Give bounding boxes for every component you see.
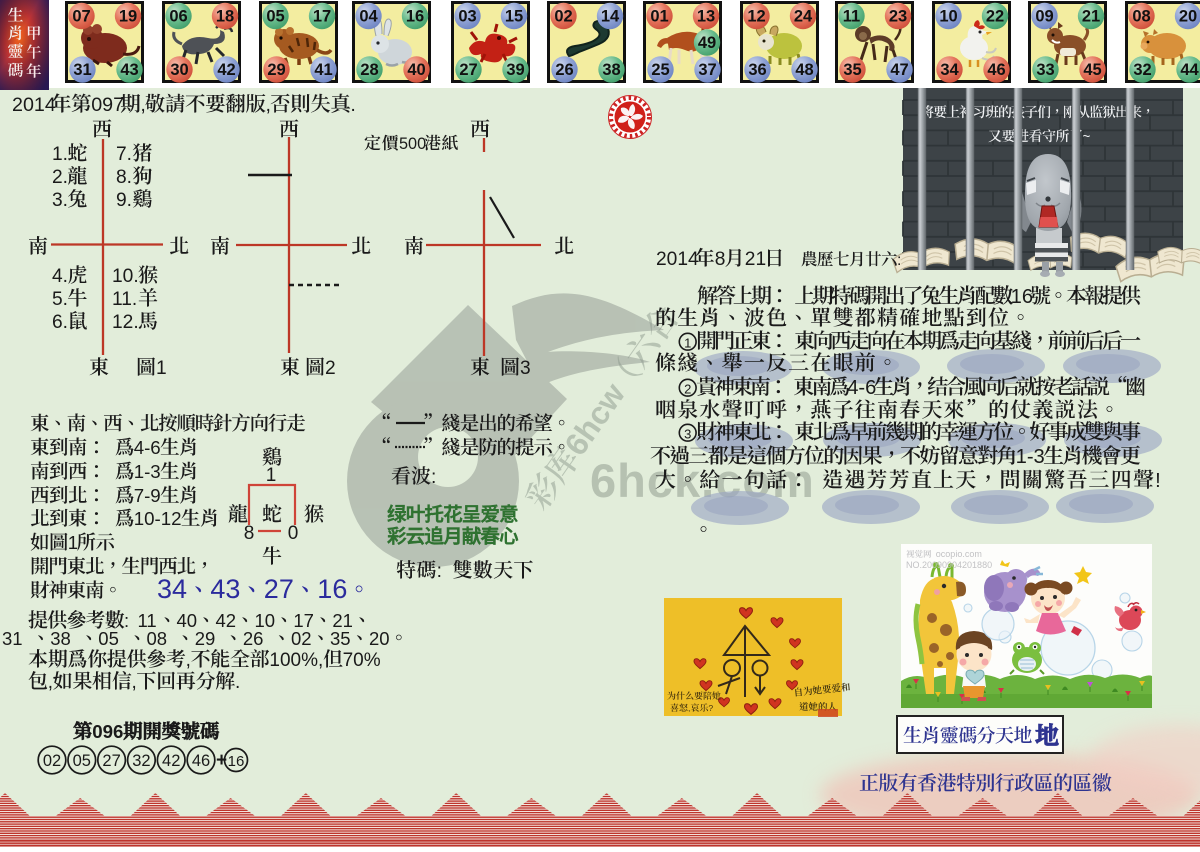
svg-text:12: 12 — [747, 8, 765, 26]
svg-text:35: 35 — [330, 628, 351, 649]
svg-text:097: 097 — [91, 94, 124, 116]
svg-text:36: 36 — [748, 61, 766, 79]
svg-text:43: 43 — [120, 61, 138, 79]
svg-text:47: 47 — [890, 61, 908, 79]
svg-text:44: 44 — [1180, 61, 1199, 79]
svg-text:2014: 2014 — [12, 94, 56, 116]
svg-text:32: 32 — [1133, 61, 1151, 79]
svg-text:5.: 5. — [52, 289, 68, 310]
svg-text:,: , — [132, 672, 137, 693]
svg-text:15: 15 — [505, 8, 523, 26]
svg-text:34: 34 — [157, 574, 187, 604]
svg-text:29: 29 — [195, 628, 216, 649]
svg-text:01: 01 — [650, 8, 668, 26]
svg-text:12.: 12. — [112, 312, 139, 333]
svg-text:30: 30 — [170, 61, 188, 79]
svg-text:03: 03 — [458, 8, 476, 26]
svg-text:42: 42 — [216, 610, 237, 631]
svg-text:41: 41 — [314, 61, 332, 79]
svg-text:13: 13 — [697, 8, 715, 26]
svg-text:20: 20 — [369, 628, 390, 649]
svg-text:38: 38 — [602, 61, 620, 79]
svg-text:17: 17 — [313, 8, 331, 26]
svg-text:8: 8 — [715, 249, 726, 270]
svg-text:05: 05 — [266, 8, 284, 26]
svg-text:1-3: 1-3 — [134, 461, 161, 482]
svg-text:31: 31 — [2, 628, 23, 649]
svg-text::: : — [897, 252, 901, 269]
svg-text:2014: 2014 — [656, 249, 699, 270]
svg-text:10-12: 10-12 — [134, 508, 182, 529]
svg-text:4-6: 4-6 — [134, 437, 161, 458]
svg-text::: : — [431, 467, 436, 488]
svg-text:02: 02 — [554, 8, 572, 26]
svg-text:4.: 4. — [52, 266, 68, 287]
svg-text:0: 0 — [288, 523, 299, 544]
svg-text:?: ? — [708, 703, 713, 713]
svg-text:4-6: 4-6 — [847, 377, 876, 399]
svg-text:32: 32 — [132, 752, 150, 770]
svg-text:16: 16 — [406, 8, 424, 26]
svg-text:6.: 6. — [52, 312, 68, 333]
svg-text:,: , — [48, 672, 53, 693]
svg-text:2: 2 — [684, 381, 691, 396]
svg-text:02: 02 — [291, 628, 312, 649]
svg-text:08: 08 — [1132, 8, 1150, 26]
svg-text:,: , — [688, 703, 690, 713]
svg-text:2.: 2. — [52, 167, 68, 188]
svg-text:21: 21 — [745, 249, 766, 270]
svg-text:26: 26 — [555, 61, 573, 79]
svg-text:42: 42 — [217, 61, 235, 79]
svg-text:27: 27 — [102, 752, 120, 770]
svg-text:07: 07 — [72, 8, 90, 26]
svg-text:1: 1 — [684, 335, 691, 350]
svg-text:,: , — [266, 94, 271, 116]
svg-text:06: 06 — [169, 8, 187, 26]
svg-text:16: 16 — [228, 753, 245, 770]
svg-text:3: 3 — [520, 358, 531, 379]
svg-text:02: 02 — [43, 752, 61, 770]
svg-text:48: 48 — [795, 61, 813, 79]
svg-text:43: 43 — [210, 574, 240, 604]
svg-text:~: ~ — [1083, 129, 1091, 144]
svg-text:.: . — [235, 672, 240, 693]
svg-text:42: 42 — [162, 752, 180, 770]
svg-text:+: + — [216, 750, 227, 771]
svg-text:08: 08 — [147, 628, 168, 649]
svg-text:46: 46 — [192, 752, 210, 770]
svg-text:05: 05 — [73, 752, 91, 770]
svg-text:37: 37 — [698, 61, 716, 79]
svg-text:14: 14 — [601, 8, 620, 26]
svg-text:1: 1 — [266, 465, 277, 486]
svg-text:.: . — [350, 94, 355, 116]
svg-text::: : — [437, 561, 442, 582]
svg-text:2: 2 — [325, 358, 336, 379]
svg-text:25: 25 — [651, 61, 669, 79]
svg-text:1.: 1. — [52, 144, 68, 165]
svg-text::: : — [124, 610, 129, 631]
svg-text:22: 22 — [986, 8, 1004, 26]
svg-text:10.: 10. — [112, 266, 139, 287]
svg-text:23: 23 — [889, 8, 907, 26]
svg-text:ocopio.com: ocopio.com — [936, 549, 982, 559]
svg-text:49: 49 — [698, 34, 716, 52]
svg-text:500: 500 — [399, 135, 426, 153]
svg-text:27: 27 — [459, 61, 477, 79]
svg-text:NO.20090904201880: NO.20090904201880 — [906, 560, 992, 570]
svg-text:05: 05 — [98, 628, 119, 649]
svg-text:19: 19 — [119, 8, 137, 26]
svg-text:04: 04 — [359, 8, 378, 26]
svg-text:33: 33 — [1036, 61, 1054, 79]
svg-text:10: 10 — [939, 8, 957, 26]
svg-text:,: , — [186, 650, 191, 671]
svg-text:3.: 3. — [52, 190, 68, 211]
svg-text:31: 31 — [73, 61, 91, 79]
svg-text:1: 1 — [156, 358, 167, 379]
svg-text:7.: 7. — [116, 144, 132, 165]
svg-text:11: 11 — [843, 8, 860, 26]
svg-text:45: 45 — [1083, 61, 1101, 79]
svg-text:3: 3 — [684, 426, 691, 441]
svg-text:46: 46 — [987, 61, 1005, 79]
svg-text:34: 34 — [940, 61, 959, 79]
svg-text:40: 40 — [407, 61, 425, 79]
svg-text:20: 20 — [1179, 8, 1197, 26]
svg-text:9.: 9. — [116, 190, 132, 211]
svg-text:09: 09 — [1035, 8, 1053, 26]
svg-text:1-3: 1-3 — [1016, 446, 1045, 468]
svg-text:8.: 8. — [116, 167, 132, 188]
svg-text:21: 21 — [1082, 8, 1100, 26]
svg-text:16: 16 — [1011, 286, 1033, 308]
svg-text:11.: 11. — [112, 289, 137, 310]
svg-text:27: 27 — [264, 574, 294, 604]
svg-text:35: 35 — [843, 61, 861, 79]
svg-text:1: 1 — [68, 532, 78, 553]
svg-text:7-9: 7-9 — [134, 485, 161, 506]
svg-text:,: , — [140, 94, 145, 116]
svg-text:24: 24 — [794, 8, 813, 26]
svg-text:70%: 70% — [343, 650, 381, 671]
svg-text:18: 18 — [216, 8, 234, 26]
svg-text:!: ! — [1155, 470, 1161, 492]
svg-text:39: 39 — [506, 61, 524, 79]
svg-text:8: 8 — [244, 523, 255, 544]
svg-text:26: 26 — [243, 628, 264, 649]
svg-text:16: 16 — [317, 574, 347, 604]
svg-text:28: 28 — [360, 61, 378, 79]
svg-text:096: 096 — [92, 721, 123, 742]
svg-text:38: 38 — [50, 628, 71, 649]
svg-text:29: 29 — [267, 61, 285, 79]
svg-text:100%,: 100%, — [269, 650, 323, 671]
